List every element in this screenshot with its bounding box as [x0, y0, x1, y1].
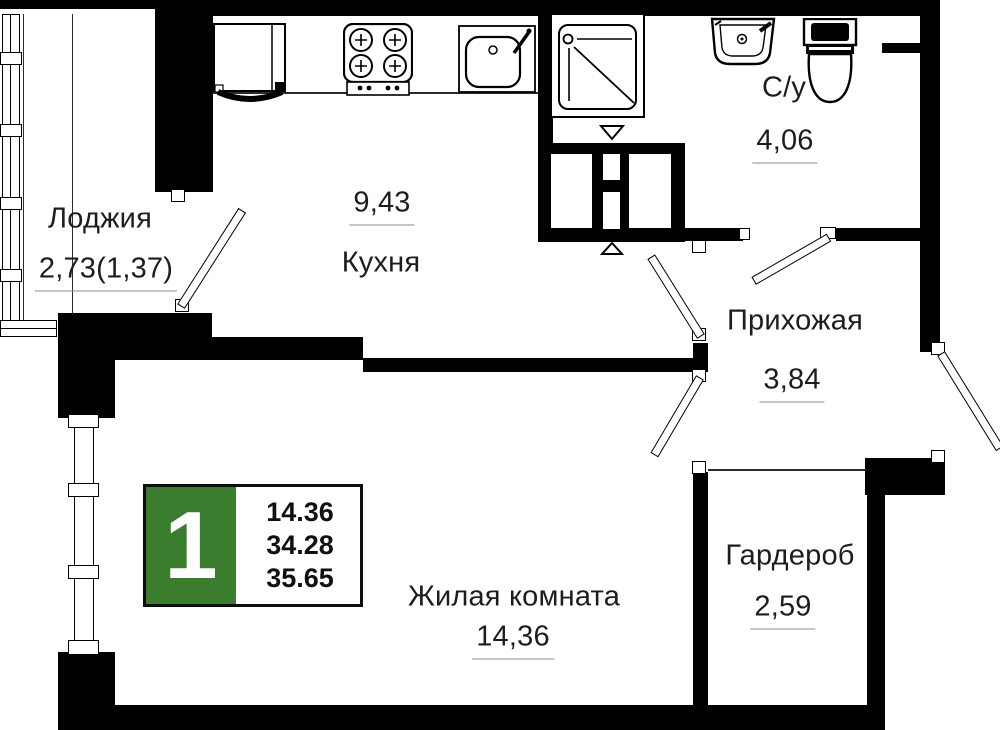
door-leaf-kitchen — [647, 254, 704, 338]
room-area-living: 14,36 — [472, 621, 554, 660]
toilet-icon — [801, 18, 859, 106]
wall-kitchen-bottom-left — [58, 337, 363, 360]
floor-plan: Лоджия 2,73(1,37) 9,43 Кухня С/у 4,06 Пр… — [0, 0, 1000, 730]
unit-area-living: 14.36 — [266, 496, 334, 529]
wall-entry-block — [865, 458, 945, 495]
vent-shaft-cell — [603, 192, 620, 229]
wall-bottom — [115, 705, 885, 730]
fridge-icon — [213, 23, 287, 108]
door-jamb — [739, 228, 750, 240]
window-mullion — [0, 269, 22, 282]
wall-left-pier-lower — [58, 652, 115, 730]
room-name-loggia: Лоджия — [48, 203, 152, 236]
window-mullion — [0, 52, 22, 65]
vent-arrow-up-icon — [600, 241, 624, 256]
wall-loggia-kitchen — [155, 9, 213, 192]
room-area-loggia: 2,73(1,37) — [35, 253, 177, 292]
unit-number: 1 — [146, 487, 236, 604]
unit-area-no-loggia: 34.28 — [266, 529, 334, 562]
wall-top-left — [0, 0, 157, 9]
shower-icon — [550, 13, 645, 118]
wall-loggia-bottom — [58, 313, 212, 340]
unit-area-total: 35.65 — [266, 562, 334, 595]
door-leaf-entrance — [937, 351, 1000, 451]
unit-areas: 14.36 34.28 35.65 — [236, 487, 360, 604]
vent-shaft-cell — [629, 154, 671, 228]
washbasin-icon — [708, 17, 778, 67]
room-name-bathroom: С/у — [762, 72, 806, 105]
door-leaf-bathroom — [751, 234, 831, 285]
room-name-wardrobe: Гардероб — [725, 540, 854, 573]
wall-left-pier-upper — [58, 360, 115, 418]
window-mullion — [0, 124, 22, 137]
window-icon — [0, 320, 57, 337]
wall-wardrobe-right — [867, 493, 885, 730]
door-jamb — [171, 189, 185, 202]
room-name-kitchen: Кухня — [342, 247, 421, 280]
window-mullion — [0, 197, 22, 210]
door-jamb — [931, 450, 945, 463]
wall-bathroom-bottom-right — [836, 228, 920, 241]
vent-arrow-down-icon — [599, 124, 625, 141]
stove-icon — [343, 23, 413, 97]
room-area-kitchen: 9,43 — [349, 187, 414, 226]
wardrobe-opening-line — [708, 469, 866, 471]
room-name-living: Жилая комната — [408, 581, 620, 614]
room-name-hallway: Прихожая — [727, 305, 863, 338]
window-mullion — [68, 640, 99, 655]
door-jamb — [692, 240, 706, 253]
door-leaf-living — [650, 375, 703, 457]
wall-kitchen-bottom-right — [363, 358, 708, 372]
room-area-wardrobe: 2,59 — [750, 591, 815, 630]
door-jamb — [692, 461, 706, 474]
room-area-hallway: 3,84 — [759, 364, 824, 403]
vent-shaft-cell — [603, 154, 620, 180]
door-leaf-loggia — [177, 208, 246, 309]
wall-wardrobe-left — [693, 472, 708, 705]
wall-stub-bathroom — [882, 43, 920, 53]
window-mullion — [68, 483, 99, 497]
window-icon — [74, 418, 94, 652]
wall-top-main — [157, 0, 940, 16]
room-area-bathroom: 4,06 — [752, 125, 817, 164]
unit-badge: 1 14.36 34.28 35.65 — [143, 484, 363, 607]
wall-door-pier — [693, 343, 708, 359]
loggia-sill-line — [23, 14, 24, 320]
window-mullion — [68, 565, 99, 579]
wall-right — [920, 0, 940, 352]
vent-shaft-cell — [551, 154, 592, 228]
kitchen-sink-icon — [458, 25, 536, 93]
window-mullion — [68, 414, 99, 428]
